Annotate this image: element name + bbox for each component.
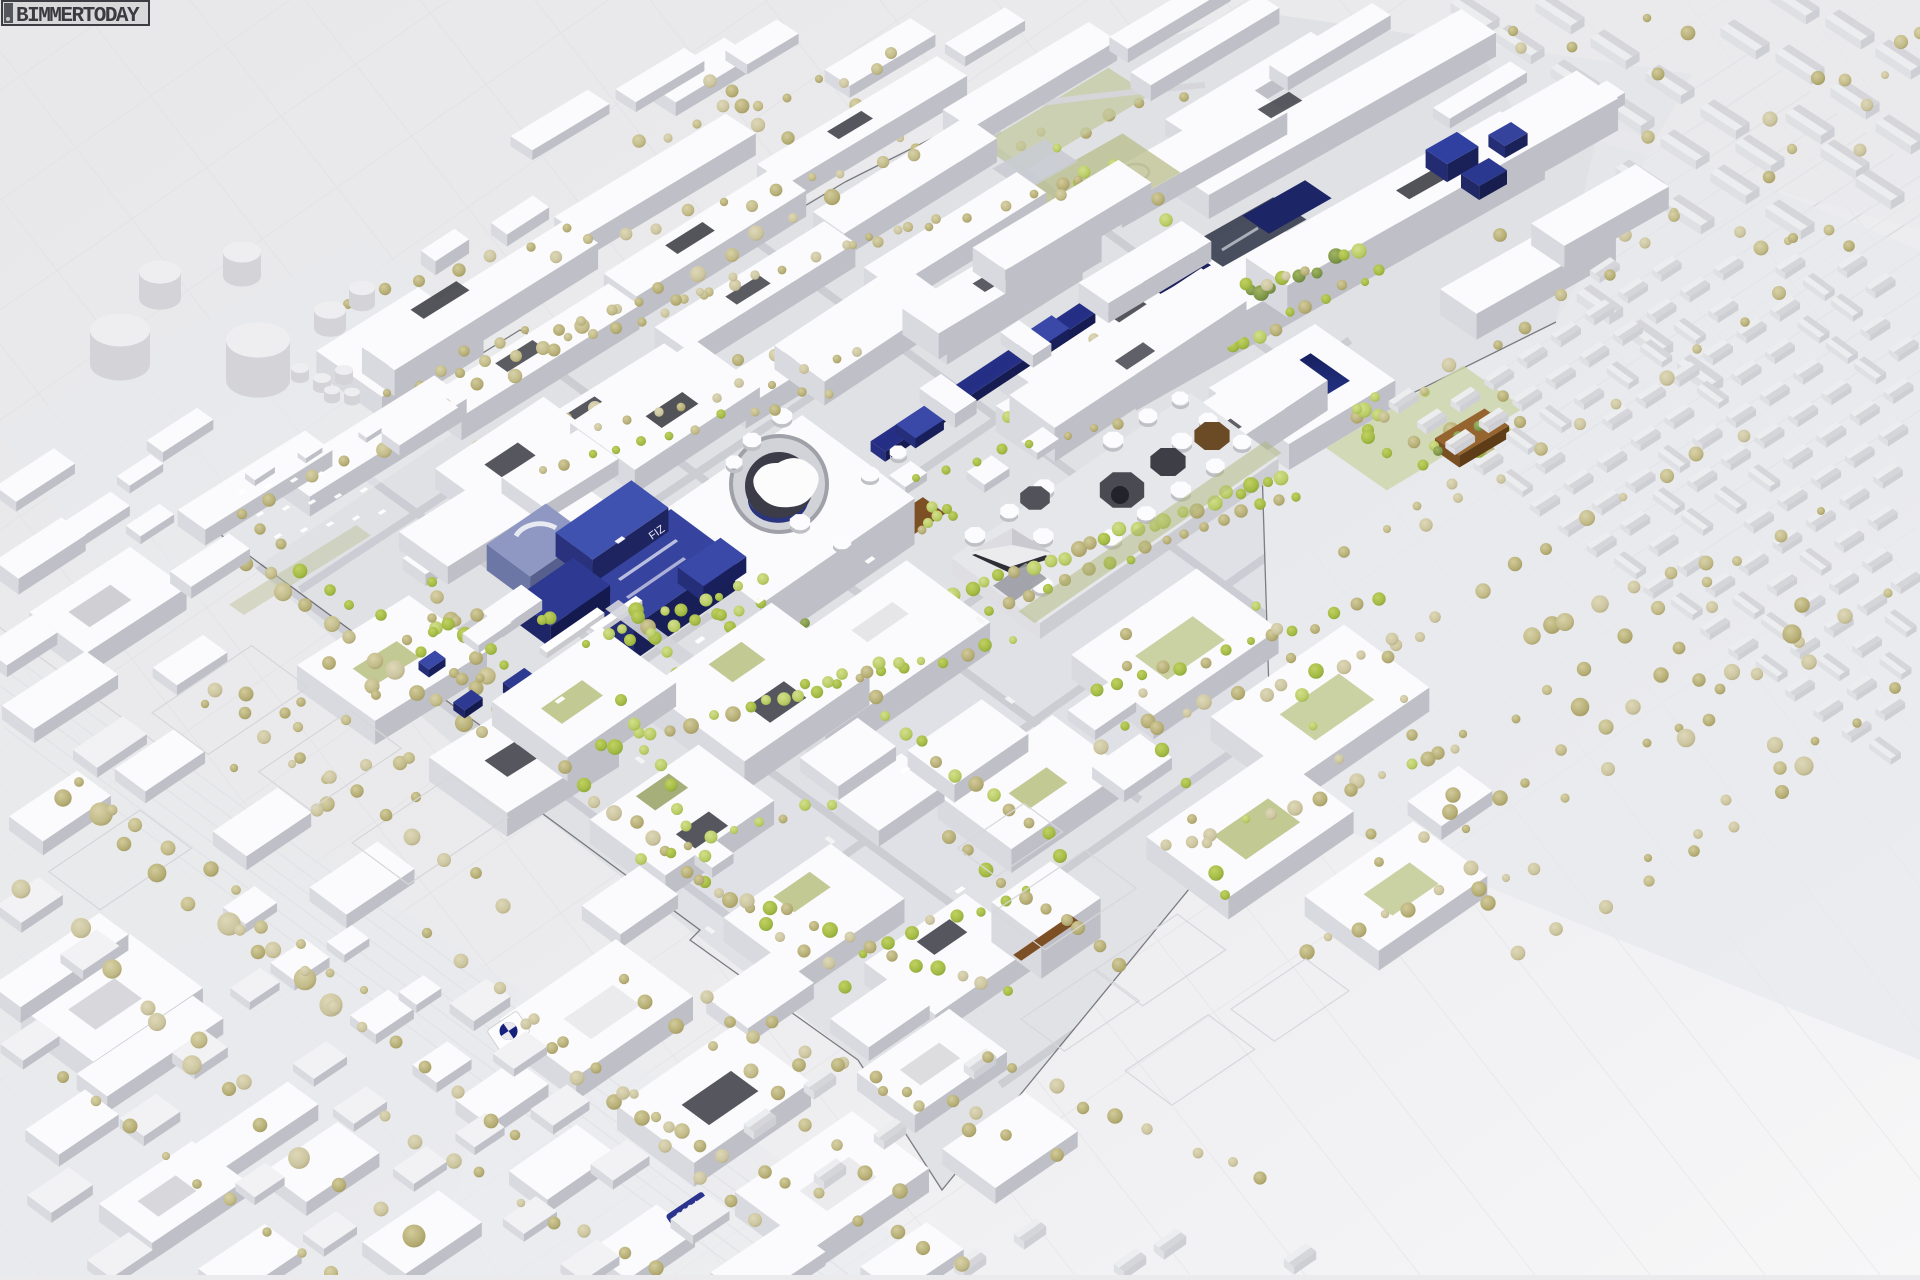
svg-text:BIMMERTODAY: BIMMERTODAY (16, 5, 140, 28)
